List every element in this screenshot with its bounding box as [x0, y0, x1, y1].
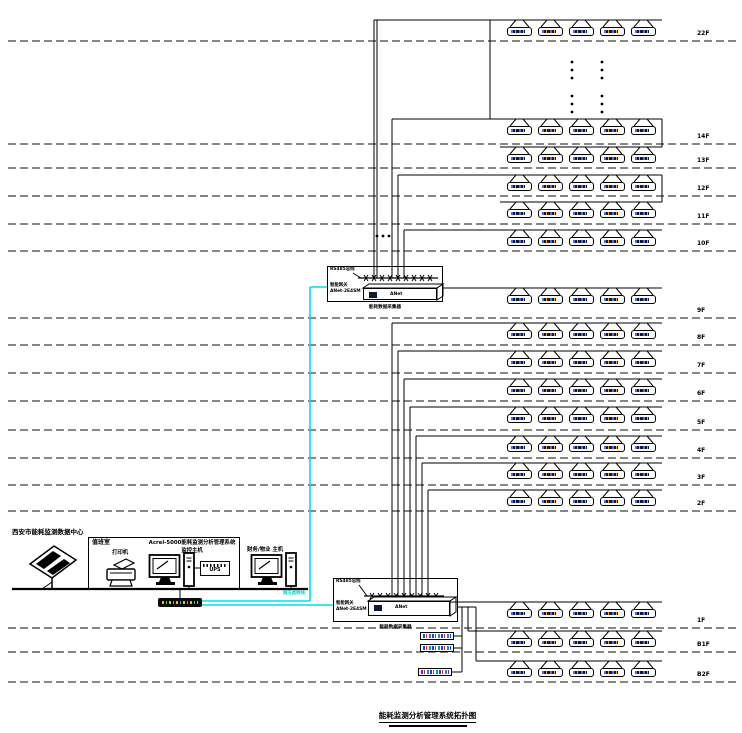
meter-display [542, 298, 556, 302]
meter-display [573, 157, 587, 161]
meter-display [542, 671, 556, 675]
ellipsis-dot [571, 111, 574, 114]
meter-tap [616, 379, 622, 386]
meter-tap [510, 202, 516, 209]
meter-display [511, 473, 525, 477]
data-center-label: 西安市能耗监测数据中心 [12, 529, 84, 536]
meter-display [542, 157, 556, 161]
device-display [369, 292, 377, 298]
meter-display [573, 185, 587, 189]
meter-display [604, 361, 618, 365]
meter-tap [572, 602, 578, 609]
meter-tap [647, 436, 653, 443]
meter-display [635, 157, 649, 161]
meter-tap [523, 175, 529, 182]
ellipsis-dot [571, 77, 574, 80]
energy-meter [507, 27, 532, 36]
meter-tap [510, 661, 516, 668]
meter-tap [634, 20, 640, 27]
meter-tap [572, 323, 578, 330]
meter-tap [647, 631, 653, 638]
gateway-label-line2: ANet-2E4SM [330, 289, 361, 294]
meter-tap [554, 436, 560, 443]
energy-meter [507, 414, 532, 423]
energy-meter [538, 497, 563, 506]
meter-tap [603, 202, 609, 209]
meter-display [604, 389, 618, 393]
meter-tap [616, 147, 622, 154]
energy-meter [600, 295, 625, 304]
meter-tap [572, 351, 578, 358]
meter-display [573, 473, 587, 477]
energy-meter [569, 386, 594, 395]
meter-tap [603, 230, 609, 237]
meter-tap [523, 490, 529, 497]
meter-tap [572, 379, 578, 386]
meter-tap [585, 147, 591, 154]
meter-tap [572, 20, 578, 27]
meter-tap [585, 661, 591, 668]
meter-tap [572, 202, 578, 209]
meter-display [542, 500, 556, 504]
meter-display [635, 671, 649, 675]
energy-meter [538, 358, 563, 367]
meter-tap [634, 379, 640, 386]
meter-display [635, 212, 649, 216]
floor-label: 6F [697, 390, 705, 397]
energy-meter [600, 27, 625, 36]
meter-tap [523, 230, 529, 237]
meter-display [511, 671, 525, 675]
ellipsis-dot [571, 69, 574, 72]
remote-meter-display [418, 668, 452, 676]
meter-display [542, 30, 556, 34]
meter-tap [647, 175, 653, 182]
energy-meter [631, 182, 656, 191]
meter-tap [634, 147, 640, 154]
meter-tap [634, 436, 640, 443]
meter-tap [541, 119, 547, 126]
remote-meter-readout [423, 646, 451, 649]
meter-display [635, 298, 649, 302]
meter-tap [616, 602, 622, 609]
meter-tap [616, 20, 622, 27]
energy-meter [507, 154, 532, 163]
meter-tap [585, 288, 591, 295]
meter-tap [634, 661, 640, 668]
ellipsis-dot [382, 235, 385, 238]
energy-meter [631, 295, 656, 304]
meter-display [542, 185, 556, 189]
meter-tap [603, 631, 609, 638]
meter-tap [572, 631, 578, 638]
ellipsis-dot [601, 95, 604, 98]
host-label-line1: Acrel-5000能耗监测分析管理系统 [146, 540, 238, 546]
meter-tap [603, 119, 609, 126]
meter-tap [523, 407, 529, 414]
meter-tap [634, 407, 640, 414]
meter-tap [572, 407, 578, 414]
gateway-label-line1: 智能网关 [330, 283, 348, 288]
monitoring-host-pc-icon [148, 552, 198, 589]
meter-tap [541, 175, 547, 182]
meter-tap [510, 20, 516, 27]
meter-tap [523, 661, 529, 668]
meter-display [573, 129, 587, 133]
meter-tap [616, 631, 622, 638]
meter-tap [585, 175, 591, 182]
meter-tap [603, 20, 609, 27]
meter-tap [541, 436, 547, 443]
meter-tap [634, 119, 640, 126]
energy-meter [600, 638, 625, 647]
meter-tap [616, 119, 622, 126]
meter-tap [541, 351, 547, 358]
ellipsis-dot [601, 77, 604, 80]
meter-display [542, 446, 556, 450]
meter-display [635, 361, 649, 365]
meter-tap [554, 379, 560, 386]
meter-tap [510, 288, 516, 295]
energy-meter [631, 668, 656, 677]
meter-display [604, 157, 618, 161]
energy-meter [507, 668, 532, 677]
energy-meter [507, 182, 532, 191]
energy-meter [631, 27, 656, 36]
meter-tap [585, 20, 591, 27]
energy-meter [538, 414, 563, 423]
finance-host-pc-icon [250, 552, 300, 589]
energy-meter [569, 154, 594, 163]
meter-tap [541, 202, 547, 209]
meter-tap [572, 119, 578, 126]
energy-meter [538, 470, 563, 479]
energy-meter [538, 443, 563, 452]
energy-meter [507, 209, 532, 218]
meter-display [542, 129, 556, 133]
meter-tap [603, 463, 609, 470]
ups-unit: UPS [200, 561, 230, 576]
floor-label: 13F [697, 157, 709, 164]
meter-tap [554, 230, 560, 237]
meter-display [573, 500, 587, 504]
meter-display [604, 212, 618, 216]
gateway-label-line1: 智能网关 [336, 601, 354, 606]
meter-display [635, 612, 649, 616]
meter-display [573, 641, 587, 645]
meter-display [573, 612, 587, 616]
energy-meter [600, 497, 625, 506]
meter-tap [603, 147, 609, 154]
meter-tap [523, 323, 529, 330]
meter-tap [603, 379, 609, 386]
meter-tap [510, 175, 516, 182]
meter-tap [647, 119, 653, 126]
meter-display [542, 333, 556, 337]
meter-tap [603, 661, 609, 668]
floor-label: B2F [697, 671, 710, 678]
energy-meter [631, 470, 656, 479]
meter-tap [634, 175, 640, 182]
meter-tap [585, 602, 591, 609]
meter-tap [647, 288, 653, 295]
meter-tap [616, 661, 622, 668]
meter-tap [647, 661, 653, 668]
wireless-antenna-icon [24, 538, 82, 590]
energy-meter [538, 237, 563, 246]
meter-tap [541, 602, 547, 609]
energy-meter [569, 237, 594, 246]
meter-display [542, 612, 556, 616]
meter-tap [634, 602, 640, 609]
meter-tap [634, 288, 640, 295]
meter-tap [510, 147, 516, 154]
meter-tap [585, 436, 591, 443]
meter-display [511, 129, 525, 133]
meter-display [604, 500, 618, 504]
gateway-device: ANet [363, 288, 437, 300]
remote-meter-readout [423, 634, 451, 637]
meter-tap [616, 351, 622, 358]
energy-meter [631, 609, 656, 618]
meter-tap [603, 490, 609, 497]
meter-tap [647, 20, 653, 27]
printer-label: 打印机 [112, 550, 128, 556]
meter-tap [523, 351, 529, 358]
energy-meter [600, 237, 625, 246]
gateway-device: ANet [368, 601, 450, 616]
gateway-label-line2: ANet-2E4SM [336, 607, 367, 612]
meter-tap [554, 119, 560, 126]
meter-tap [554, 602, 560, 609]
remote-meter-display [420, 632, 454, 640]
meter-tap [647, 490, 653, 497]
meter-tap [647, 147, 653, 154]
energy-meter [538, 126, 563, 135]
energy-meter [507, 386, 532, 395]
floor-label: 7F [697, 362, 705, 369]
ellipsis-dot [601, 111, 604, 114]
meter-display [542, 212, 556, 216]
meter-tap [585, 379, 591, 386]
energy-meter [600, 154, 625, 163]
meter-tap [541, 631, 547, 638]
switch-ports [162, 601, 198, 604]
meter-tap [523, 436, 529, 443]
meter-tap [616, 288, 622, 295]
meter-tap [647, 407, 653, 414]
meter-display [542, 417, 556, 421]
meter-display [635, 641, 649, 645]
floor-label: 12F [697, 185, 709, 192]
collector-caption: 能耗数据采集器 [327, 304, 443, 310]
energy-meter [507, 237, 532, 246]
meter-tap [554, 147, 560, 154]
meter-display [511, 157, 525, 161]
energy-meter [569, 470, 594, 479]
meter-tap [603, 602, 609, 609]
meter-display [635, 333, 649, 337]
meter-display [635, 500, 649, 504]
meter-tap [616, 230, 622, 237]
meter-tap [541, 661, 547, 668]
meter-tap [541, 230, 547, 237]
ellipsis-dot [571, 95, 574, 98]
meter-display [511, 446, 525, 450]
energy-meter [631, 330, 656, 339]
energy-meter [631, 237, 656, 246]
meter-display [511, 612, 525, 616]
meter-tap [554, 661, 560, 668]
meter-display [573, 446, 587, 450]
energy-meter [569, 443, 594, 452]
energy-meter [600, 609, 625, 618]
ellipsis-dot [571, 103, 574, 106]
meter-tap [510, 323, 516, 330]
topology-diagram-canvas: 西安市能耗监测数据中心 值班室 Acrel-5000能耗监测分析管理系统 监控主… [0, 0, 742, 733]
collector-caption: 能耗数据采集器 [333, 624, 458, 630]
meter-tap [616, 407, 622, 414]
energy-meter [631, 414, 656, 423]
meter-tap [647, 463, 653, 470]
ellipsis-dot [388, 235, 391, 238]
ups-label: UPS [201, 567, 229, 573]
meter-display [511, 333, 525, 337]
meter-tap [510, 119, 516, 126]
meter-tap [585, 463, 591, 470]
meter-tap [616, 436, 622, 443]
meter-tap [572, 436, 578, 443]
meter-tap [541, 288, 547, 295]
device-display [374, 605, 382, 611]
meter-tap [554, 288, 560, 295]
energy-meter [631, 497, 656, 506]
meter-tap [572, 230, 578, 237]
meter-tap [554, 631, 560, 638]
energy-meter [600, 209, 625, 218]
meter-tap [647, 351, 653, 358]
energy-meter [507, 358, 532, 367]
floor-label: 1F [697, 617, 705, 624]
ethernet-switch [158, 598, 202, 607]
meter-display [604, 641, 618, 645]
meter-tap [554, 407, 560, 414]
meter-tap [616, 175, 622, 182]
meter-display [573, 298, 587, 302]
meter-tap [510, 407, 516, 414]
meter-tap [634, 463, 640, 470]
remote-meter-display [420, 644, 454, 652]
energy-meter [538, 154, 563, 163]
meter-display [635, 389, 649, 393]
meter-display [573, 361, 587, 365]
energy-meter [538, 209, 563, 218]
energy-meter [569, 209, 594, 218]
meter-display [604, 298, 618, 302]
meter-tap [541, 323, 547, 330]
meter-tap [554, 351, 560, 358]
energy-meter [600, 182, 625, 191]
floor-label: 14F [697, 133, 709, 140]
meter-tap [585, 490, 591, 497]
meter-display [635, 240, 649, 244]
energy-meter [569, 295, 594, 304]
meter-tap [510, 351, 516, 358]
meter-tap [603, 175, 609, 182]
meter-tap [572, 463, 578, 470]
meter-display [511, 500, 525, 504]
meter-tap [541, 407, 547, 414]
meter-display [604, 129, 618, 133]
meter-display [511, 389, 525, 393]
energy-meter [538, 295, 563, 304]
meter-tap [616, 490, 622, 497]
energy-meter [600, 443, 625, 452]
meter-tap [541, 463, 547, 470]
floor-label: 8F [697, 334, 705, 341]
meter-tap [585, 407, 591, 414]
meter-display [573, 240, 587, 244]
meter-tap [554, 323, 560, 330]
meter-tap [616, 202, 622, 209]
drawing-title: 能耗监测分析管理系统拓扑图 [379, 710, 477, 723]
energy-meter [600, 126, 625, 135]
meter-tap [523, 631, 529, 638]
device-model-text: ANet [395, 605, 407, 610]
duty-room-label: 值班室 [92, 540, 110, 547]
energy-meter [507, 638, 532, 647]
energy-meter [569, 330, 594, 339]
meter-display [635, 129, 649, 133]
meter-display [573, 671, 587, 675]
meter-tap [603, 288, 609, 295]
floor-label: 10F [697, 240, 709, 247]
remote-meter-readout [421, 670, 449, 673]
meter-tap [603, 407, 609, 414]
meter-tap [647, 202, 653, 209]
meter-display [635, 417, 649, 421]
meter-tap [541, 147, 547, 154]
meter-display [604, 446, 618, 450]
meter-tap [510, 631, 516, 638]
drawing-title-block: 能耗监测分析管理系统拓扑图 [355, 703, 500, 727]
energy-meter [569, 497, 594, 506]
meter-tap [572, 175, 578, 182]
meter-tap [585, 119, 591, 126]
meter-display [573, 30, 587, 34]
meter-tap [585, 351, 591, 358]
floor-label: 4F [697, 447, 705, 454]
floor-label: 2F [697, 500, 705, 507]
meter-tap [554, 175, 560, 182]
meter-display [604, 30, 618, 34]
meter-tap [585, 230, 591, 237]
floor-label: 9F [697, 307, 705, 314]
energy-meter [538, 182, 563, 191]
energy-meter [507, 126, 532, 135]
meter-display [511, 641, 525, 645]
energy-meter [600, 386, 625, 395]
meter-display [542, 641, 556, 645]
meter-tap [603, 351, 609, 358]
meter-display [604, 473, 618, 477]
meter-display [604, 185, 618, 189]
energy-meter [507, 295, 532, 304]
meter-tap [647, 323, 653, 330]
energy-meter [507, 330, 532, 339]
meter-tap [510, 230, 516, 237]
ellipsis-dot [571, 61, 574, 64]
